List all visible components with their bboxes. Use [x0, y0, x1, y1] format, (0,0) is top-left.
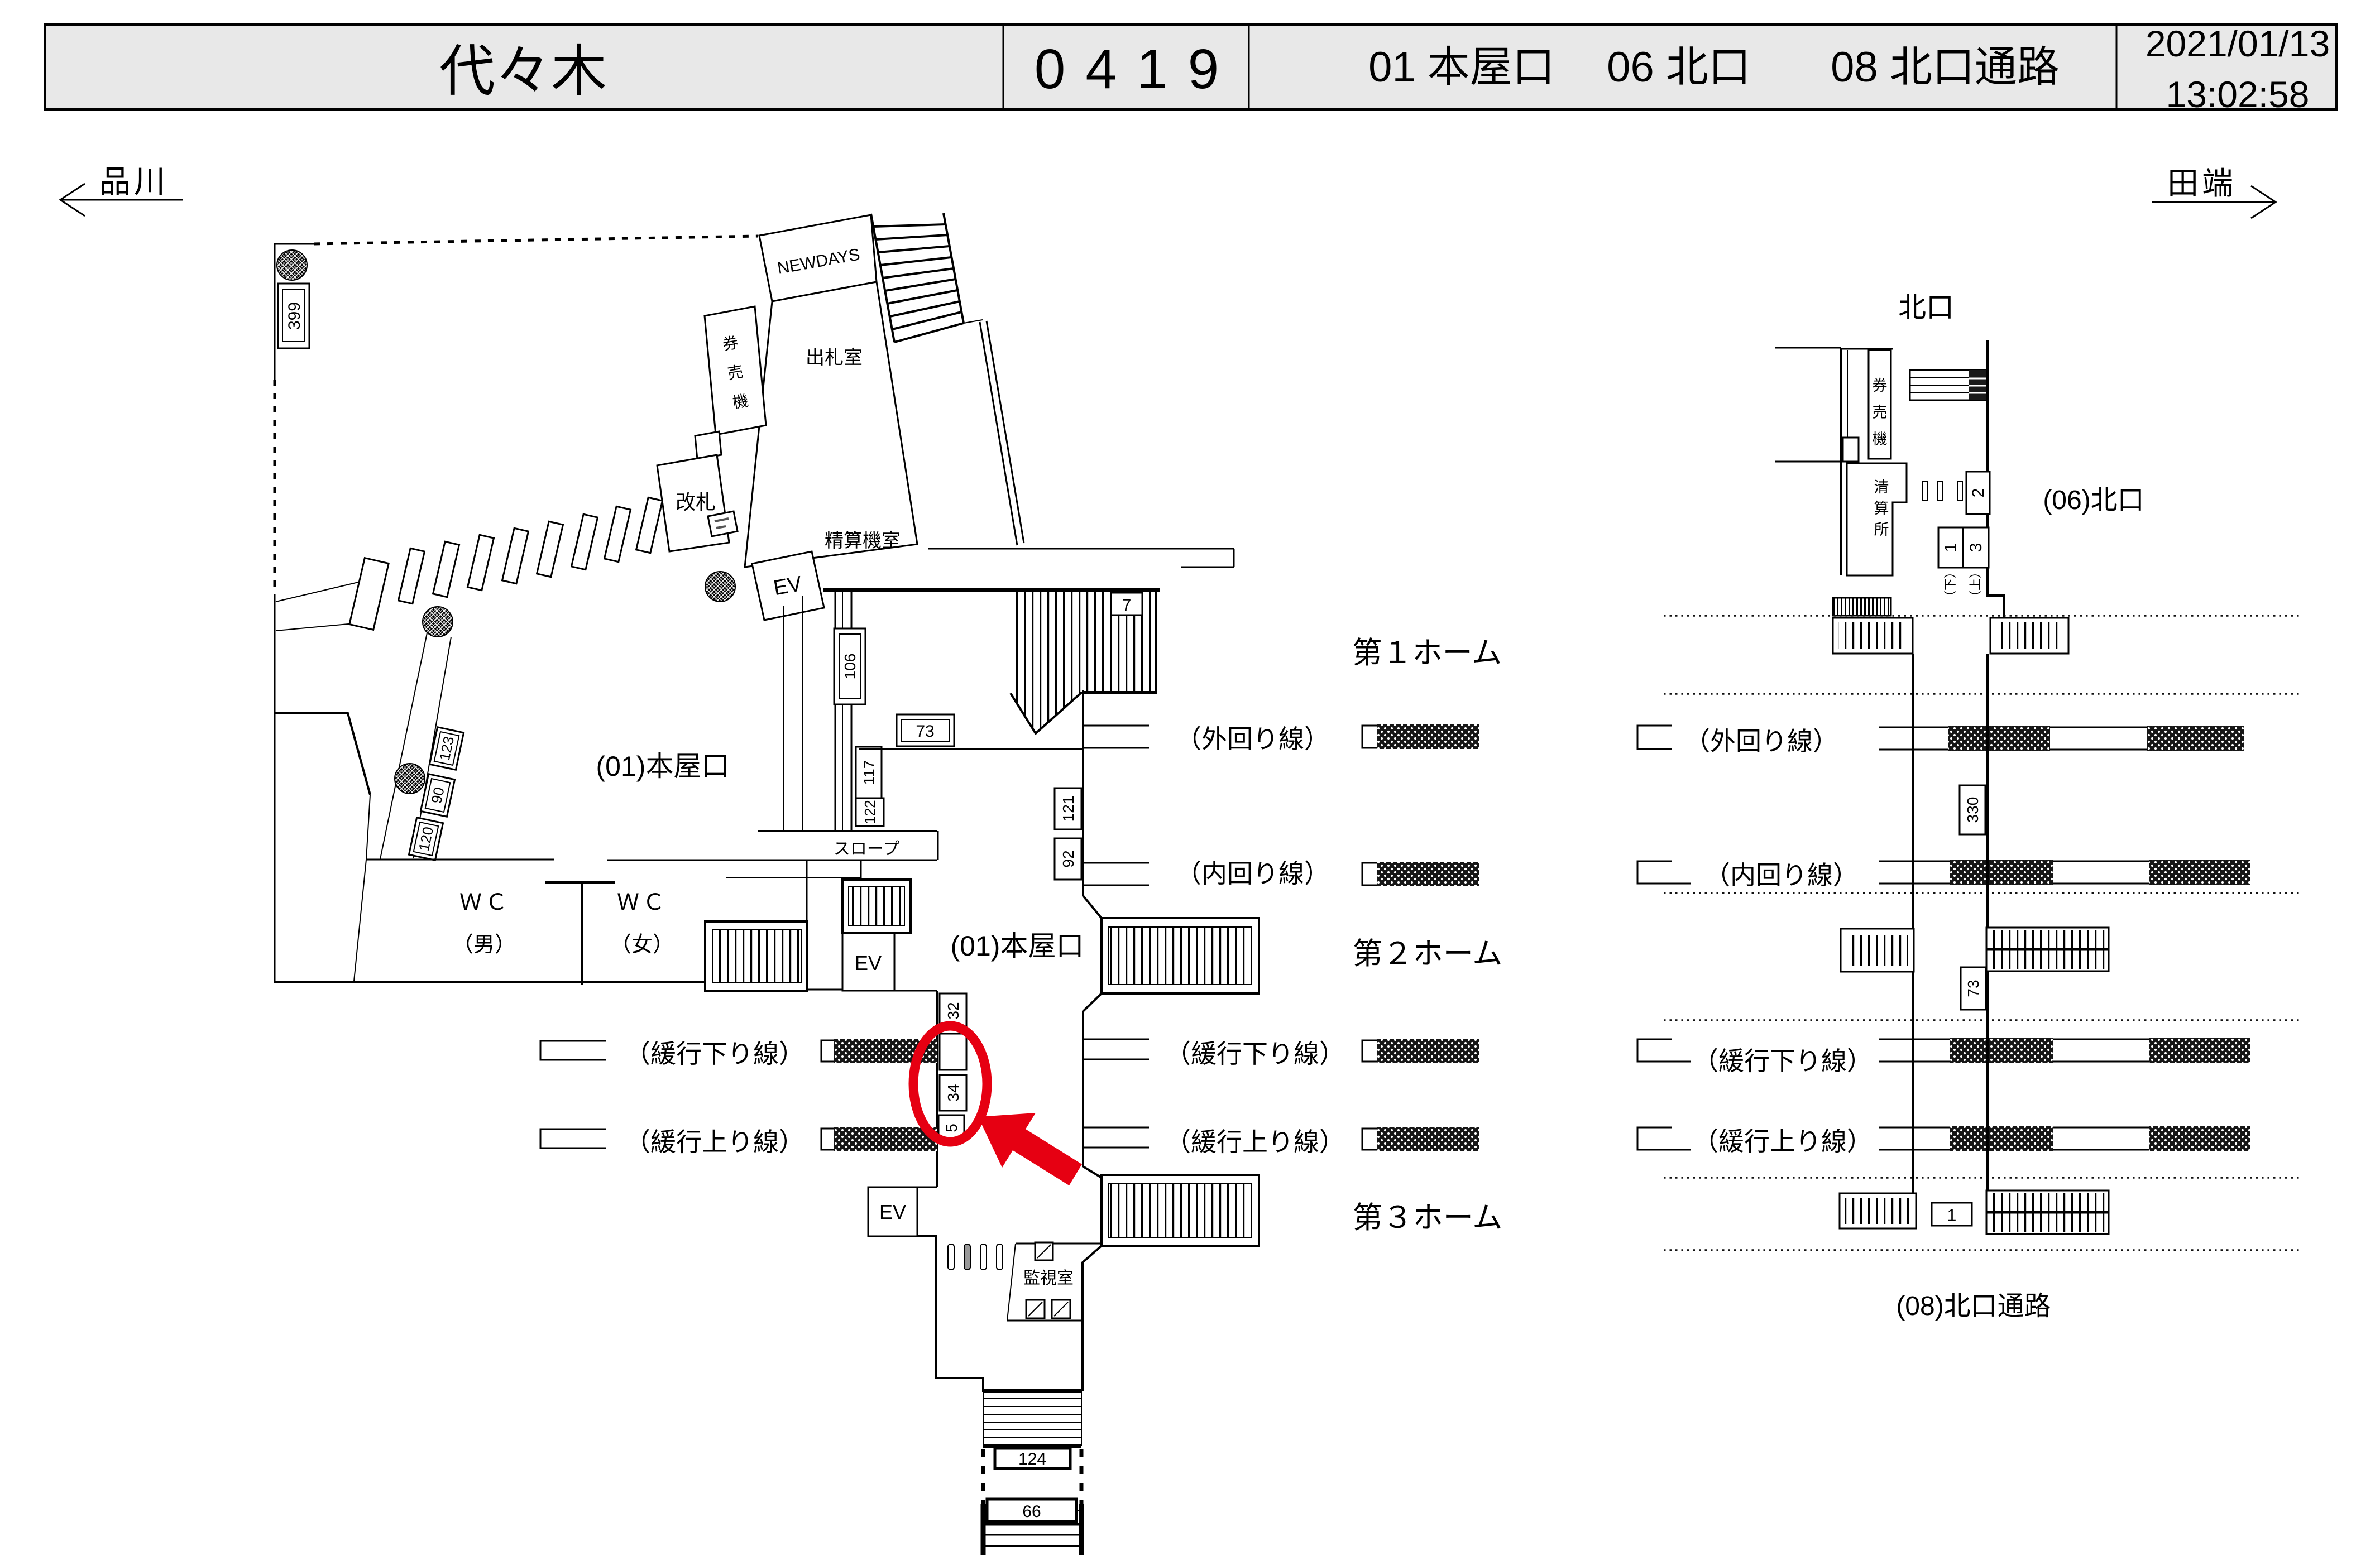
svg-text:機: 機: [1873, 431, 1888, 448]
svg-text:スロープ: スロープ: [834, 840, 899, 858]
svg-text:（緩行上り線）: （緩行上り線）: [1693, 1127, 1873, 1156]
svg-text:改札: 改札: [676, 491, 716, 513]
svg-text:7: 7: [1122, 596, 1132, 615]
svg-text:92: 92: [1060, 850, 1077, 867]
svg-text:算: 算: [1874, 500, 1889, 517]
svg-text:第２ホーム: 第２ホーム: [1353, 937, 1502, 971]
svg-text:（内回り線）: （内回り線）: [1704, 861, 1859, 890]
svg-text:（上）: （上）: [1969, 566, 1982, 603]
svg-text:第１ホーム: 第１ホーム: [1352, 636, 1502, 670]
svg-text:1: 1: [1947, 1206, 1957, 1225]
svg-text:ＷＣ: ＷＣ: [617, 890, 668, 915]
svg-text:06 北口: 06 北口: [1607, 44, 1751, 91]
svg-text:第３ホーム: 第３ホーム: [1353, 1201, 1502, 1235]
svg-text:1: 1: [1942, 543, 1960, 553]
svg-text:(06)北口: (06)北口: [2043, 486, 2144, 515]
svg-text:EV: EV: [879, 1201, 906, 1223]
svg-text:監視室: 監視室: [1023, 1269, 1074, 1288]
svg-text:73: 73: [1965, 980, 1982, 997]
svg-text:106: 106: [841, 654, 859, 680]
svg-text:（緩行下り線）: （緩行下り線）: [625, 1039, 804, 1068]
svg-text:売: 売: [726, 363, 745, 382]
svg-text:（下）: （下）: [1943, 566, 1957, 603]
svg-text:（緩行上り線）: （緩行上り線）: [625, 1127, 804, 1156]
svg-text:13:02:58: 13:02:58: [2166, 74, 2310, 115]
svg-text:売: 売: [1873, 404, 1888, 421]
svg-text:2: 2: [1969, 488, 1988, 498]
svg-text:73: 73: [916, 722, 934, 741]
svg-text:EV: EV: [772, 572, 804, 600]
svg-text:（内回り線）: （内回り線）: [1176, 859, 1330, 888]
svg-text:（外回り線）: （外回り線）: [1176, 724, 1330, 753]
svg-text:5: 5: [943, 1124, 960, 1132]
svg-text:(08)北口通路: (08)北口通路: [1896, 1292, 2051, 1321]
svg-text:券: 券: [1873, 377, 1888, 394]
svg-text:（緩行上り線）: （緩行上り線）: [1165, 1127, 1345, 1156]
svg-text:66: 66: [1022, 1502, 1041, 1521]
svg-text:0419: 0419: [1035, 38, 1239, 100]
svg-text:(01)本屋口: (01)本屋口: [596, 751, 730, 782]
svg-text:（緩行下り線）: （緩行下り線）: [1693, 1046, 1873, 1076]
svg-text:機: 機: [731, 392, 750, 411]
svg-text:券: 券: [721, 334, 740, 353]
svg-text:32: 32: [945, 1002, 962, 1019]
svg-text:出札室: 出札室: [806, 347, 863, 368]
svg-text:（外回り線）: （外回り線）: [1684, 727, 1838, 756]
svg-text:01 本屋口: 01 本屋口: [1368, 44, 1555, 91]
svg-text:ＷＣ: ＷＣ: [459, 890, 511, 915]
svg-text:清: 清: [1874, 479, 1889, 496]
svg-text:399: 399: [285, 302, 304, 330]
svg-text:330: 330: [1964, 797, 1981, 823]
svg-text:121: 121: [1060, 796, 1077, 822]
svg-text:北口: 北口: [1898, 292, 1954, 323]
svg-text:08 北口通路: 08 北口通路: [1831, 44, 2060, 91]
svg-text:代々木: 代々木: [439, 40, 607, 103]
svg-text:90: 90: [428, 786, 447, 805]
svg-text:品川: 品川: [99, 164, 169, 199]
svg-text:2021/01/13: 2021/01/13: [2146, 23, 2330, 64]
svg-text:精算機室: 精算機室: [825, 530, 901, 551]
svg-text:3: 3: [1967, 543, 1985, 553]
svg-text:（女）: （女）: [610, 933, 674, 957]
svg-text:117: 117: [860, 760, 878, 785]
svg-text:34: 34: [945, 1084, 962, 1101]
svg-text:(01)本屋口: (01)本屋口: [951, 930, 1084, 962]
svg-text:田端: 田端: [2167, 166, 2237, 201]
svg-text:124: 124: [1018, 1450, 1046, 1468]
svg-text:122: 122: [861, 800, 878, 824]
svg-text:（緩行下り線）: （緩行下り線）: [1165, 1039, 1345, 1068]
svg-text:所: 所: [1874, 521, 1889, 538]
svg-text:EV: EV: [855, 952, 882, 974]
svg-text:（男）: （男）: [452, 933, 516, 957]
